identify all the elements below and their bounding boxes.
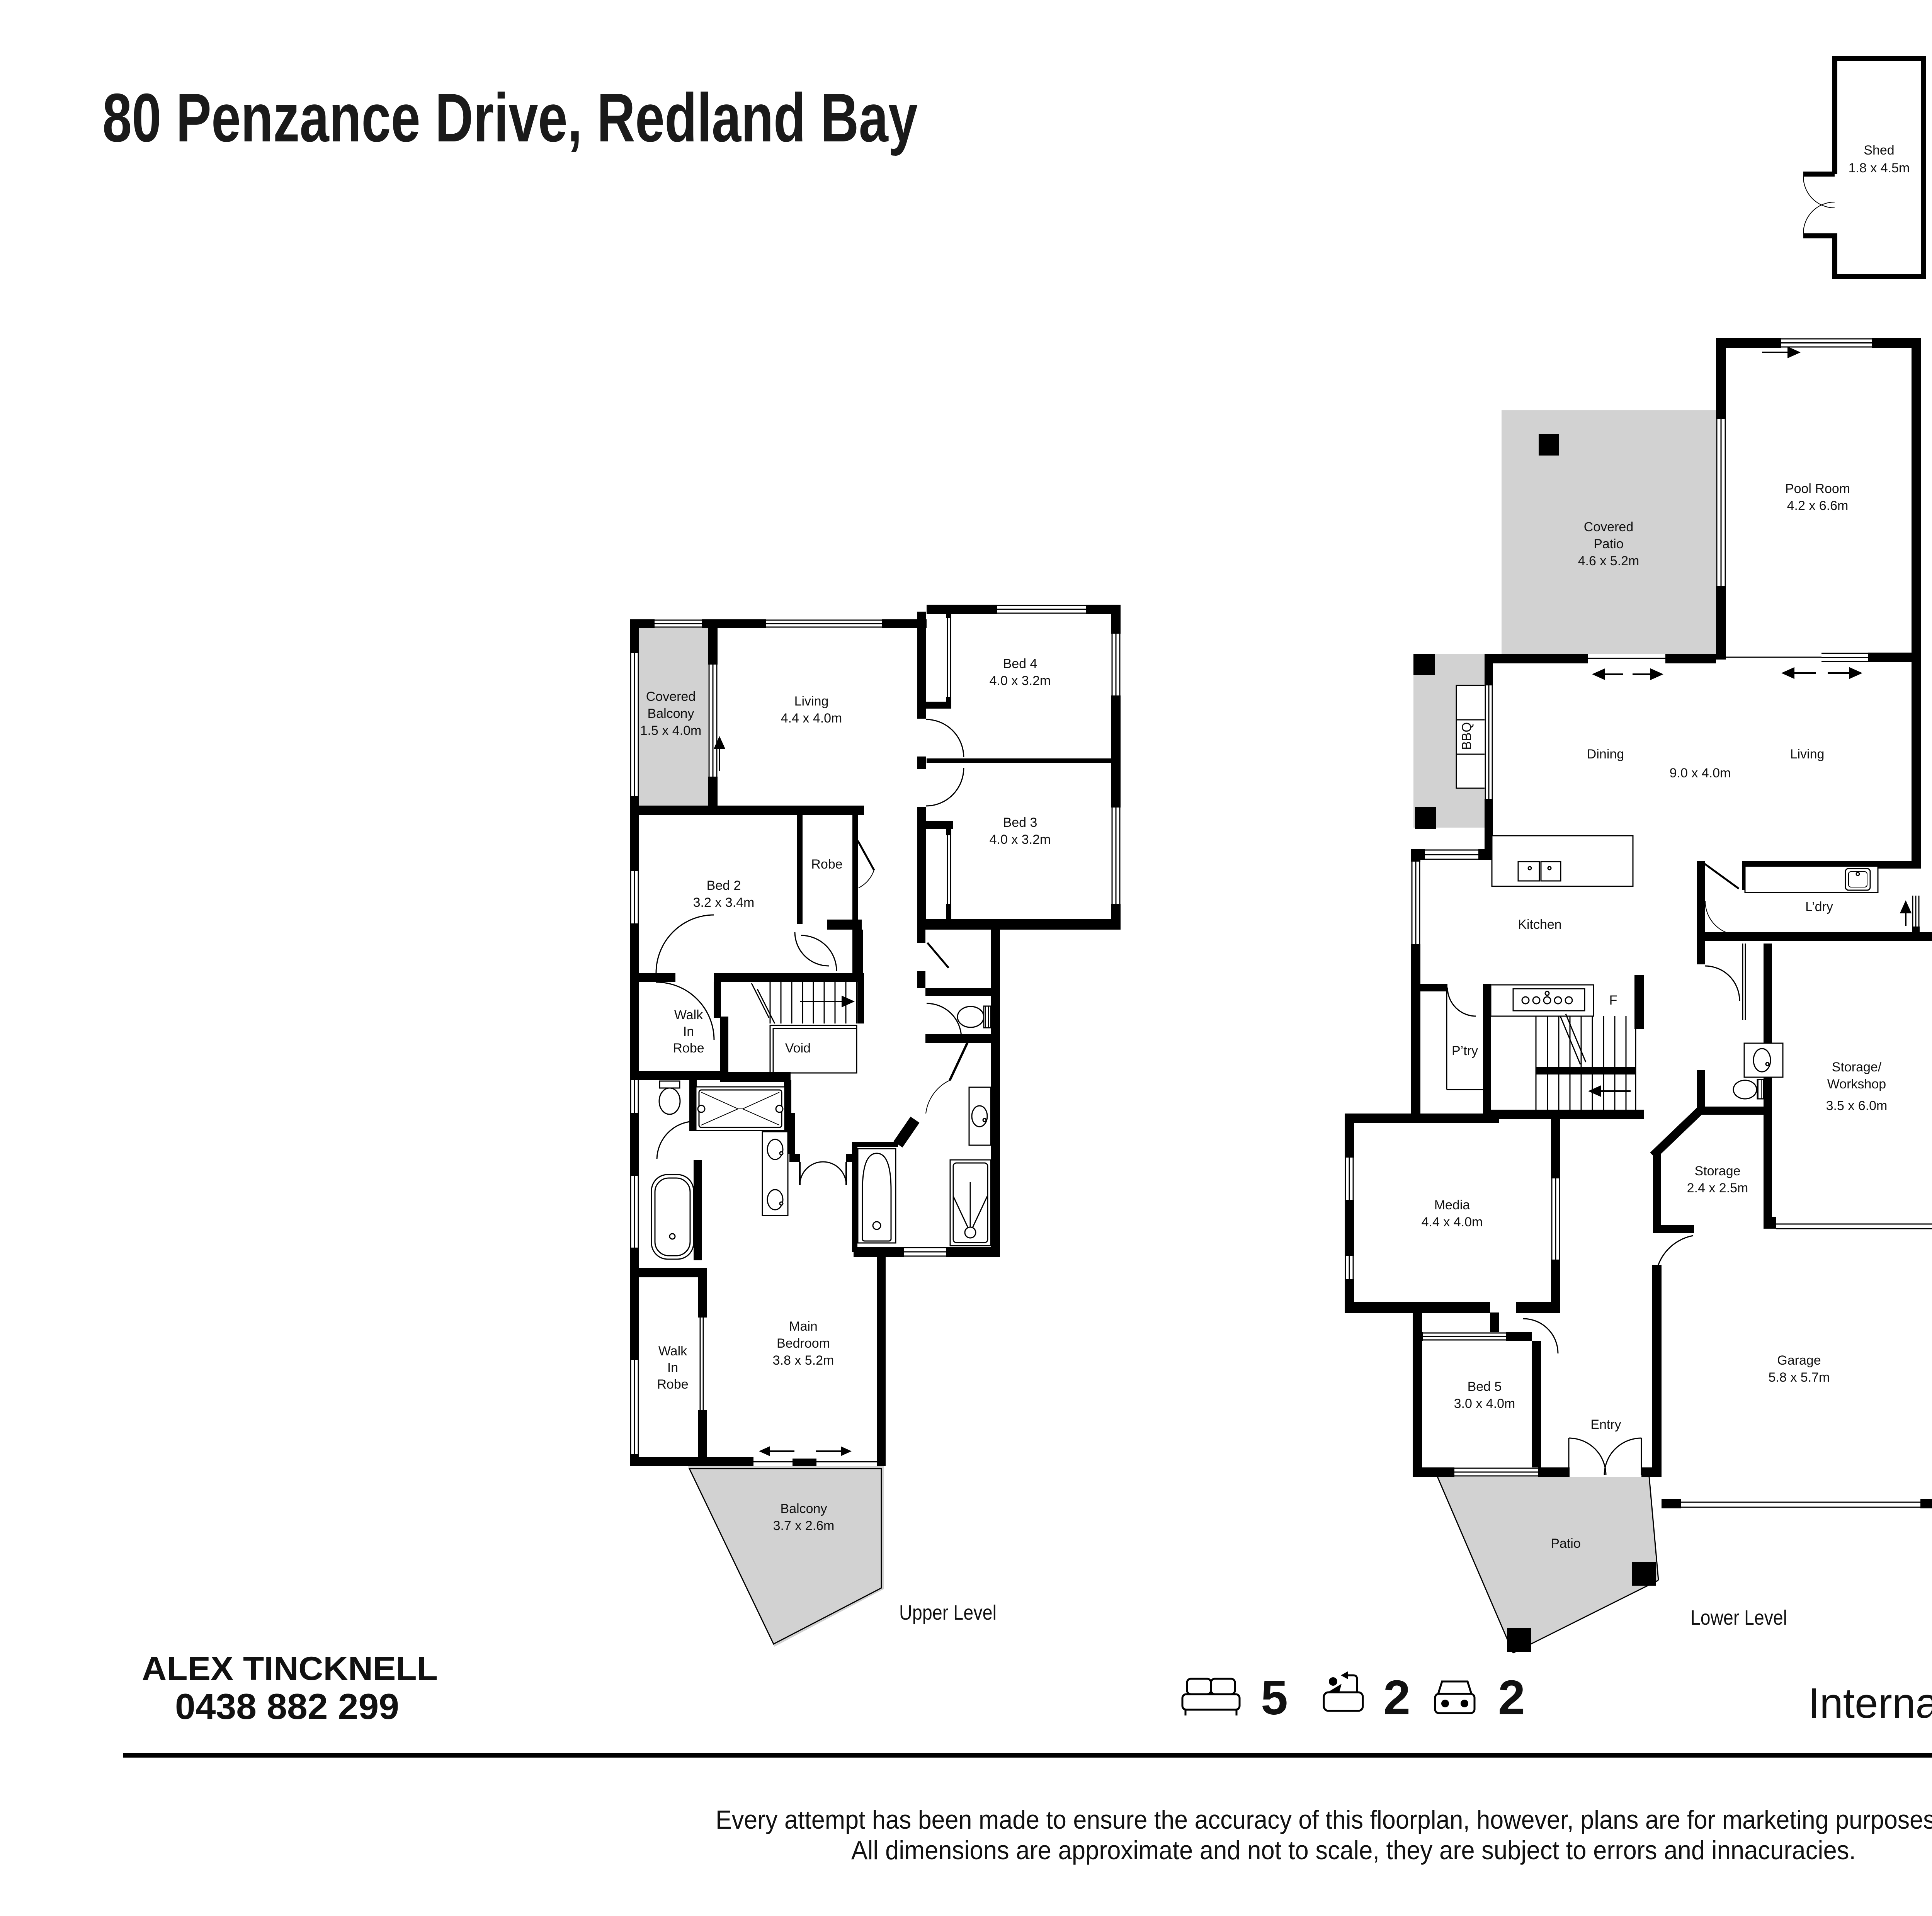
svg-text:4.2 x 6.6m: 4.2 x 6.6m bbox=[1787, 498, 1849, 513]
svg-text:In: In bbox=[683, 1024, 694, 1039]
svg-text:3.0 x 4.0m: 3.0 x 4.0m bbox=[1454, 1396, 1515, 1411]
svg-text:Storage: Storage bbox=[1694, 1164, 1740, 1178]
svg-text:3.5 x 6.0m: 3.5 x 6.0m bbox=[1826, 1098, 1888, 1113]
svg-text:P’try: P’try bbox=[1452, 1044, 1478, 1058]
svg-text:3.8 x 5.2m: 3.8 x 5.2m bbox=[773, 1353, 834, 1368]
svg-text:Bed 4: Bed 4 bbox=[1003, 656, 1037, 671]
svg-text:1.5 x 4.0m: 1.5 x 4.0m bbox=[640, 723, 702, 738]
svg-text:Walk: Walk bbox=[658, 1344, 687, 1358]
svg-text:4.6 x 5.2m: 4.6 x 5.2m bbox=[1578, 554, 1639, 568]
svg-text:Entry: Entry bbox=[1590, 1417, 1621, 1432]
svg-text:Bed 2: Bed 2 bbox=[707, 878, 741, 893]
svg-text:In: In bbox=[667, 1360, 678, 1375]
svg-text:ALEX TINCKNELL: ALEX TINCKNELL bbox=[142, 1650, 438, 1687]
svg-text:2.4 x 2.5m: 2.4 x 2.5m bbox=[1687, 1181, 1748, 1195]
svg-text:Robe: Robe bbox=[673, 1041, 704, 1056]
svg-text:5.8 x 5.7m: 5.8 x 5.7m bbox=[1769, 1370, 1830, 1385]
svg-text:F: F bbox=[1609, 993, 1617, 1008]
svg-text:Main: Main bbox=[789, 1319, 818, 1334]
svg-text:5: 5 bbox=[1261, 1670, 1288, 1725]
svg-text:Kitchen: Kitchen bbox=[1518, 917, 1561, 932]
svg-text:3.7 x 2.6m: 3.7 x 2.6m bbox=[773, 1518, 835, 1533]
svg-text:1.8 x 4.5m: 1.8 x 4.5m bbox=[1849, 161, 1910, 175]
svg-text:Upper Level: Upper Level bbox=[899, 1601, 997, 1624]
svg-text:Every attempt has been made to: Every attempt has been made to ensure th… bbox=[716, 1805, 1932, 1834]
svg-text:Storage/: Storage/ bbox=[1832, 1060, 1882, 1074]
svg-text:4.4 x 4.0m: 4.4 x 4.0m bbox=[1422, 1215, 1483, 1229]
svg-text:Living: Living bbox=[1790, 747, 1825, 762]
svg-text:4.0 x 3.2m: 4.0 x 3.2m bbox=[990, 673, 1051, 688]
svg-text:Robe: Robe bbox=[657, 1377, 688, 1392]
svg-text:80 Penzance Drive, Redland Bay: 80 Penzance Drive, Redland Bay bbox=[102, 79, 918, 156]
svg-text:Garage: Garage bbox=[1777, 1353, 1821, 1368]
svg-text:2: 2 bbox=[1383, 1670, 1410, 1725]
svg-text:Bed 3: Bed 3 bbox=[1003, 815, 1037, 830]
svg-text:Shed: Shed bbox=[1864, 143, 1894, 158]
svg-text:L’dry: L’dry bbox=[1805, 899, 1833, 914]
svg-text:0438 882 299: 0438 882 299 bbox=[175, 1686, 399, 1727]
svg-text:4.0 x 3.2m: 4.0 x 3.2m bbox=[990, 832, 1051, 847]
svg-text:Bed 5: Bed 5 bbox=[1468, 1379, 1502, 1394]
svg-text:BBQ: BBQ bbox=[1459, 722, 1474, 750]
svg-text:9.0 x 4.0m: 9.0 x 4.0m bbox=[1670, 766, 1731, 780]
svg-text:Covered: Covered bbox=[646, 689, 696, 704]
svg-text:3.2 x 3.4m: 3.2 x 3.4m bbox=[693, 895, 755, 910]
svg-text:Patio: Patio bbox=[1551, 1536, 1581, 1551]
svg-text:All dimensions are approximate: All dimensions are approximate and not t… bbox=[851, 1836, 1856, 1865]
svg-text:Walk: Walk bbox=[674, 1008, 703, 1022]
svg-text:Internal 338m²: Internal 338m² bbox=[1808, 1680, 1932, 1727]
svg-text:Pool Room: Pool Room bbox=[1785, 481, 1850, 496]
svg-text:Balcony: Balcony bbox=[781, 1501, 827, 1516]
svg-text:Media: Media bbox=[1434, 1198, 1470, 1212]
svg-text:Living: Living bbox=[794, 694, 829, 709]
svg-text:4.4 x 4.0m: 4.4 x 4.0m bbox=[781, 711, 842, 726]
svg-text:Lower Level: Lower Level bbox=[1690, 1606, 1787, 1629]
svg-text:Covered: Covered bbox=[1584, 520, 1634, 534]
svg-text:2: 2 bbox=[1498, 1670, 1525, 1725]
svg-text:Robe: Robe bbox=[811, 857, 842, 872]
svg-text:Patio: Patio bbox=[1594, 537, 1624, 551]
svg-text:Bedroom: Bedroom bbox=[777, 1336, 830, 1351]
svg-text:Void: Void bbox=[785, 1041, 811, 1056]
svg-text:Workshop: Workshop bbox=[1827, 1077, 1886, 1091]
svg-text:Balcony: Balcony bbox=[648, 706, 694, 721]
svg-text:Dining: Dining bbox=[1587, 747, 1624, 762]
